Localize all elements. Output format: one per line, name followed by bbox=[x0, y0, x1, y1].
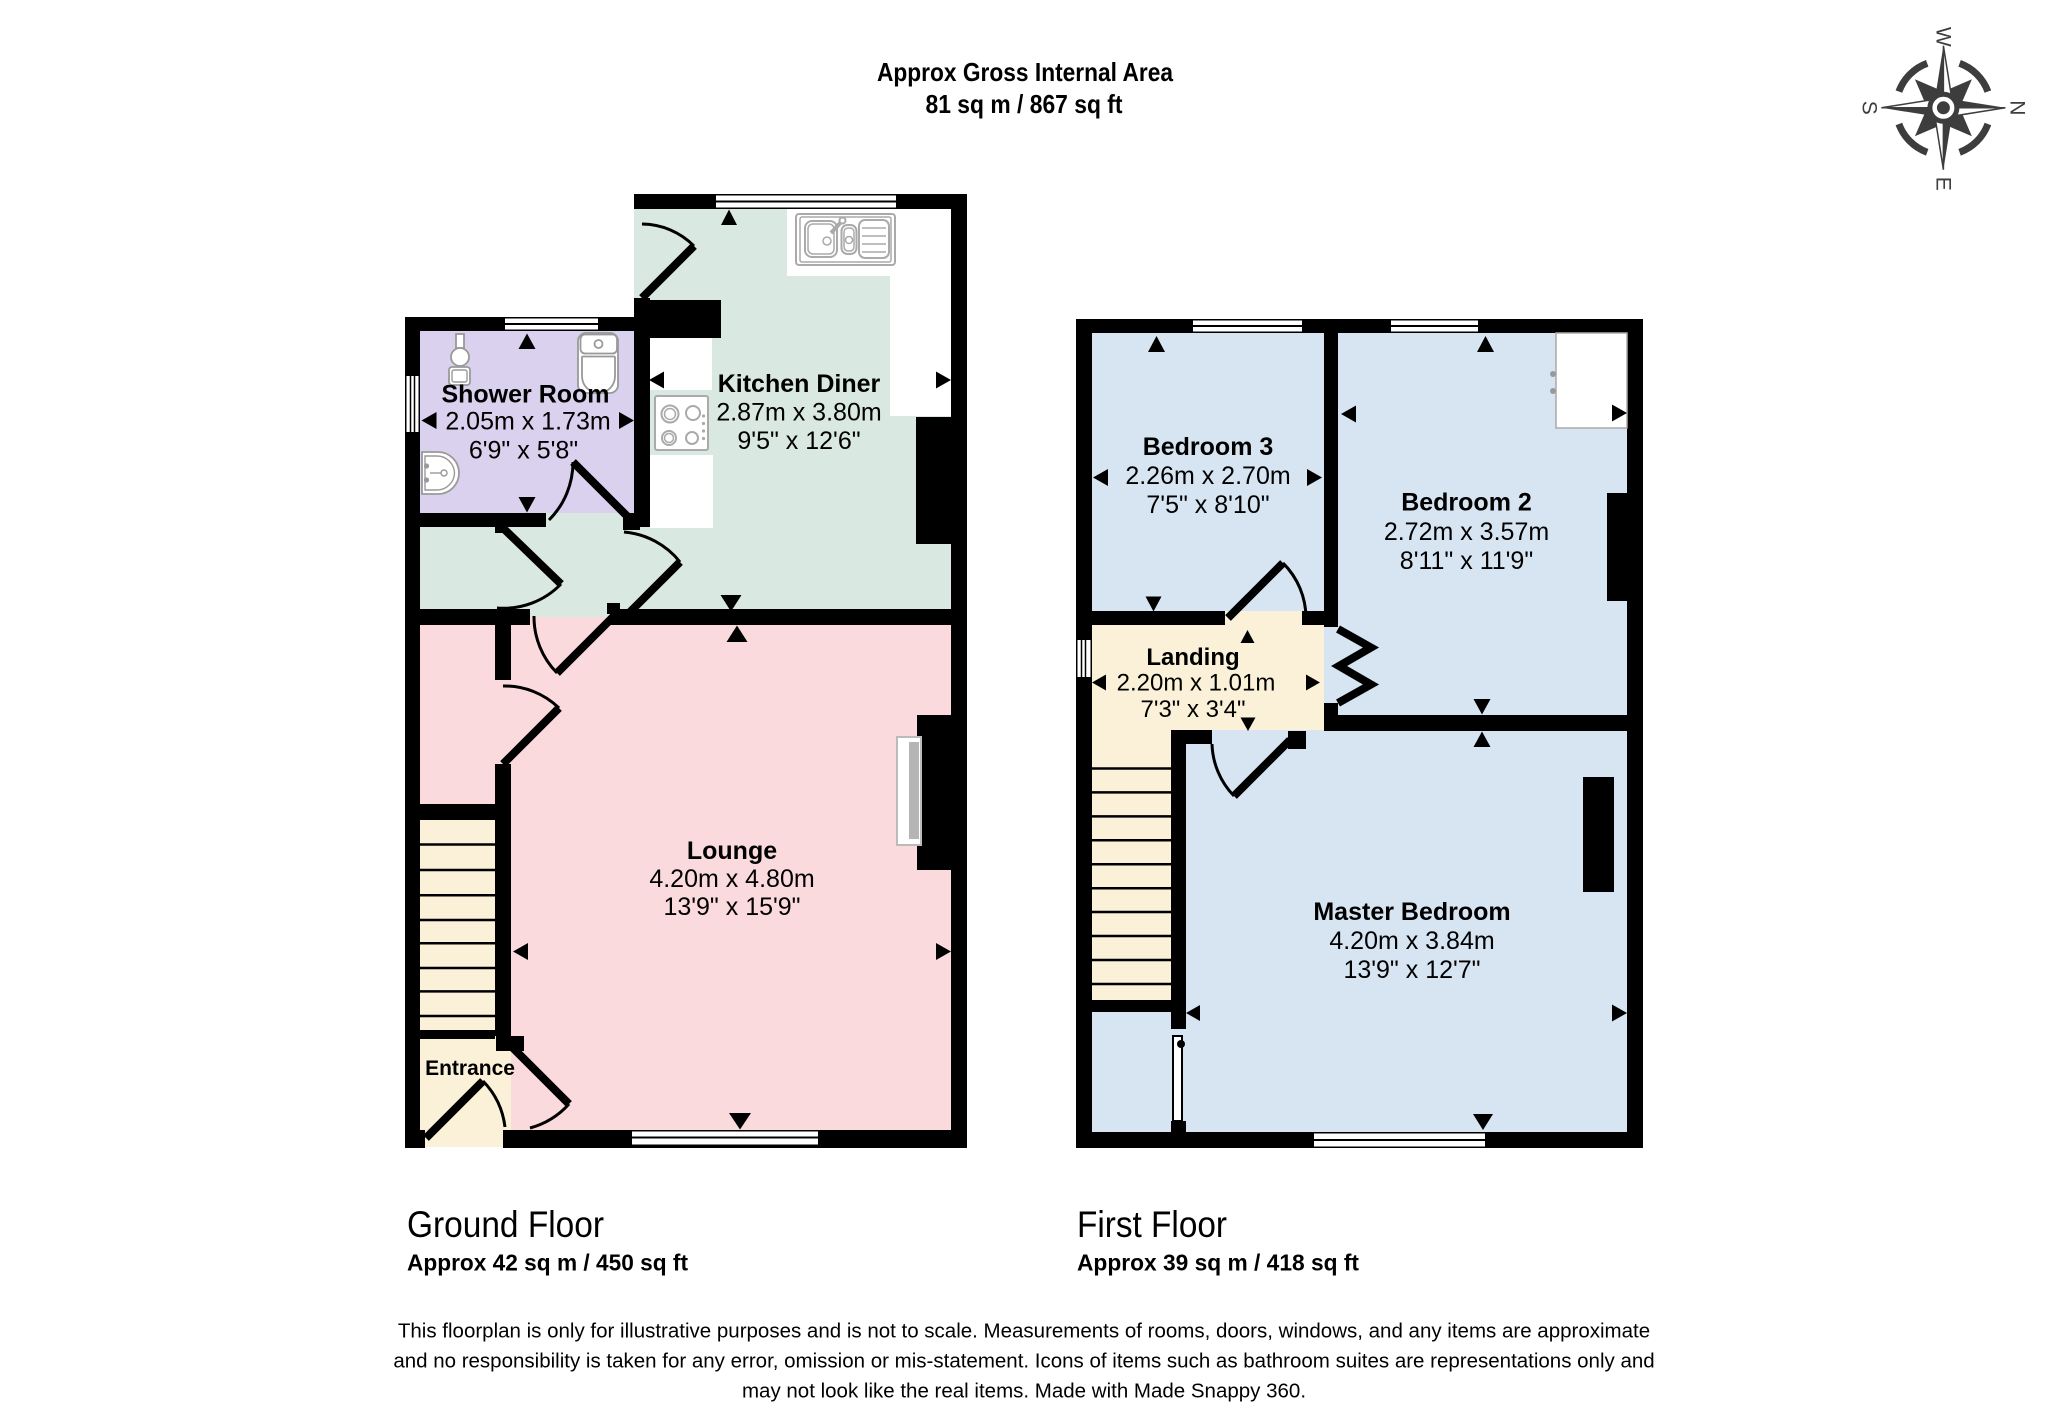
svg-text:S: S bbox=[1857, 101, 1880, 115]
svg-text:Master Bedroom: Master Bedroom bbox=[1313, 898, 1510, 926]
svg-text:may not look like the real ite: may not look like the real items. Made w… bbox=[742, 1380, 1306, 1403]
svg-text:Approx 42 sq m / 450 sq ft: Approx 42 sq m / 450 sq ft bbox=[407, 1250, 688, 1276]
svg-text:Bedroom 3: Bedroom 3 bbox=[1143, 433, 1274, 461]
svg-text:Approx Gross Internal Area: Approx Gross Internal Area bbox=[877, 57, 1173, 87]
svg-text:2.72m x 3.57m: 2.72m x 3.57m bbox=[1384, 518, 1549, 546]
svg-text:13'9" x 12'7": 13'9" x 12'7" bbox=[1343, 956, 1480, 984]
svg-text:6'9" x 5'8": 6'9" x 5'8" bbox=[469, 437, 578, 465]
svg-text:9'5" x 12'6": 9'5" x 12'6" bbox=[737, 427, 860, 455]
svg-text:81 sq m / 867 sq ft: 81 sq m / 867 sq ft bbox=[926, 89, 1123, 119]
svg-text:E: E bbox=[1931, 177, 1954, 191]
svg-text:N: N bbox=[2005, 100, 2028, 115]
svg-text:8'11" x 11'9": 8'11" x 11'9" bbox=[1400, 547, 1533, 575]
svg-text:and no responsibility is taken: and no responsibility is taken for any e… bbox=[393, 1350, 1654, 1373]
svg-text:Bedroom 2: Bedroom 2 bbox=[1401, 489, 1532, 517]
svg-text:2.05m x 1.73m: 2.05m x 1.73m bbox=[445, 408, 610, 436]
svg-text:Landing: Landing bbox=[1146, 644, 1239, 671]
svg-text:Kitchen Diner: Kitchen Diner bbox=[718, 370, 881, 398]
svg-text:2.87m x 3.80m: 2.87m x 3.80m bbox=[716, 399, 881, 427]
svg-text:7'3" x 3'4": 7'3" x 3'4" bbox=[1141, 696, 1246, 723]
svg-text:First Floor: First Floor bbox=[1077, 1204, 1227, 1245]
svg-text:Entrance: Entrance bbox=[425, 1057, 515, 1080]
svg-text:Lounge: Lounge bbox=[687, 837, 777, 865]
svg-text:Shower Room: Shower Room bbox=[441, 381, 609, 409]
svg-text:4.20m x 3.84m: 4.20m x 3.84m bbox=[1329, 927, 1494, 955]
svg-text:2.26m x 2.70m: 2.26m x 2.70m bbox=[1125, 462, 1290, 490]
svg-text:4.20m x 4.80m: 4.20m x 4.80m bbox=[649, 865, 814, 893]
svg-text:Ground Floor: Ground Floor bbox=[407, 1204, 604, 1245]
svg-text:This floorplan is only for ill: This floorplan is only for illustrative … bbox=[398, 1320, 1650, 1343]
svg-text:13'9" x 15'9": 13'9" x 15'9" bbox=[663, 893, 800, 921]
svg-text:Approx 39 sq m / 418 sq ft: Approx 39 sq m / 418 sq ft bbox=[1077, 1250, 1359, 1276]
svg-text:W: W bbox=[1931, 27, 1954, 47]
svg-text:7'5" x 8'10": 7'5" x 8'10" bbox=[1146, 491, 1269, 519]
svg-text:2.20m x 1.01m: 2.20m x 1.01m bbox=[1117, 670, 1276, 697]
